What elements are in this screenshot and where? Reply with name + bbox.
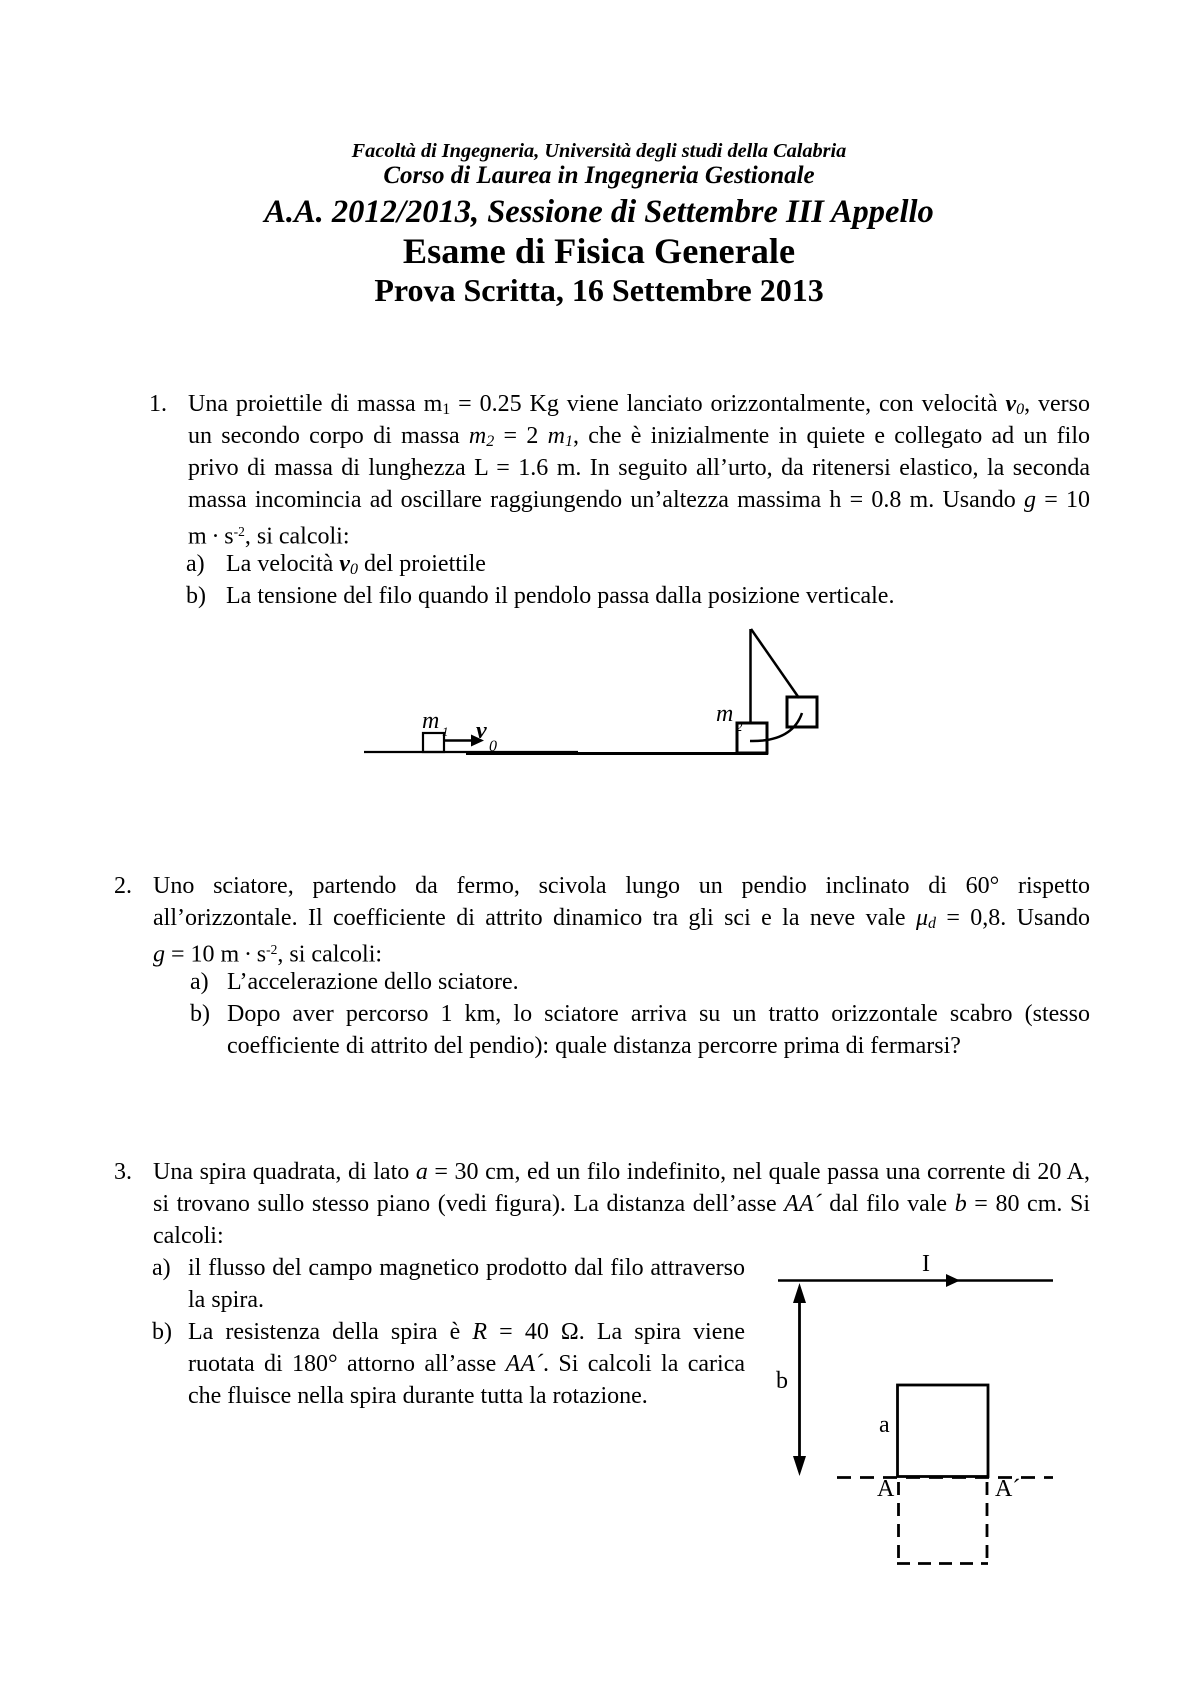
svg-text:2: 2	[736, 719, 743, 734]
svg-text:1: 1	[442, 724, 449, 739]
svg-text:v: v	[476, 718, 487, 744]
svg-text:a: a	[879, 1412, 890, 1438]
svg-text:b: b	[776, 1368, 788, 1394]
svg-text:A´: A´	[995, 1476, 1020, 1502]
svg-text:m: m	[716, 701, 733, 727]
svg-text:0: 0	[489, 738, 497, 755]
svg-text:A: A	[877, 1476, 895, 1502]
svg-text:I: I	[922, 1251, 930, 1277]
svg-text:m: m	[422, 708, 439, 734]
